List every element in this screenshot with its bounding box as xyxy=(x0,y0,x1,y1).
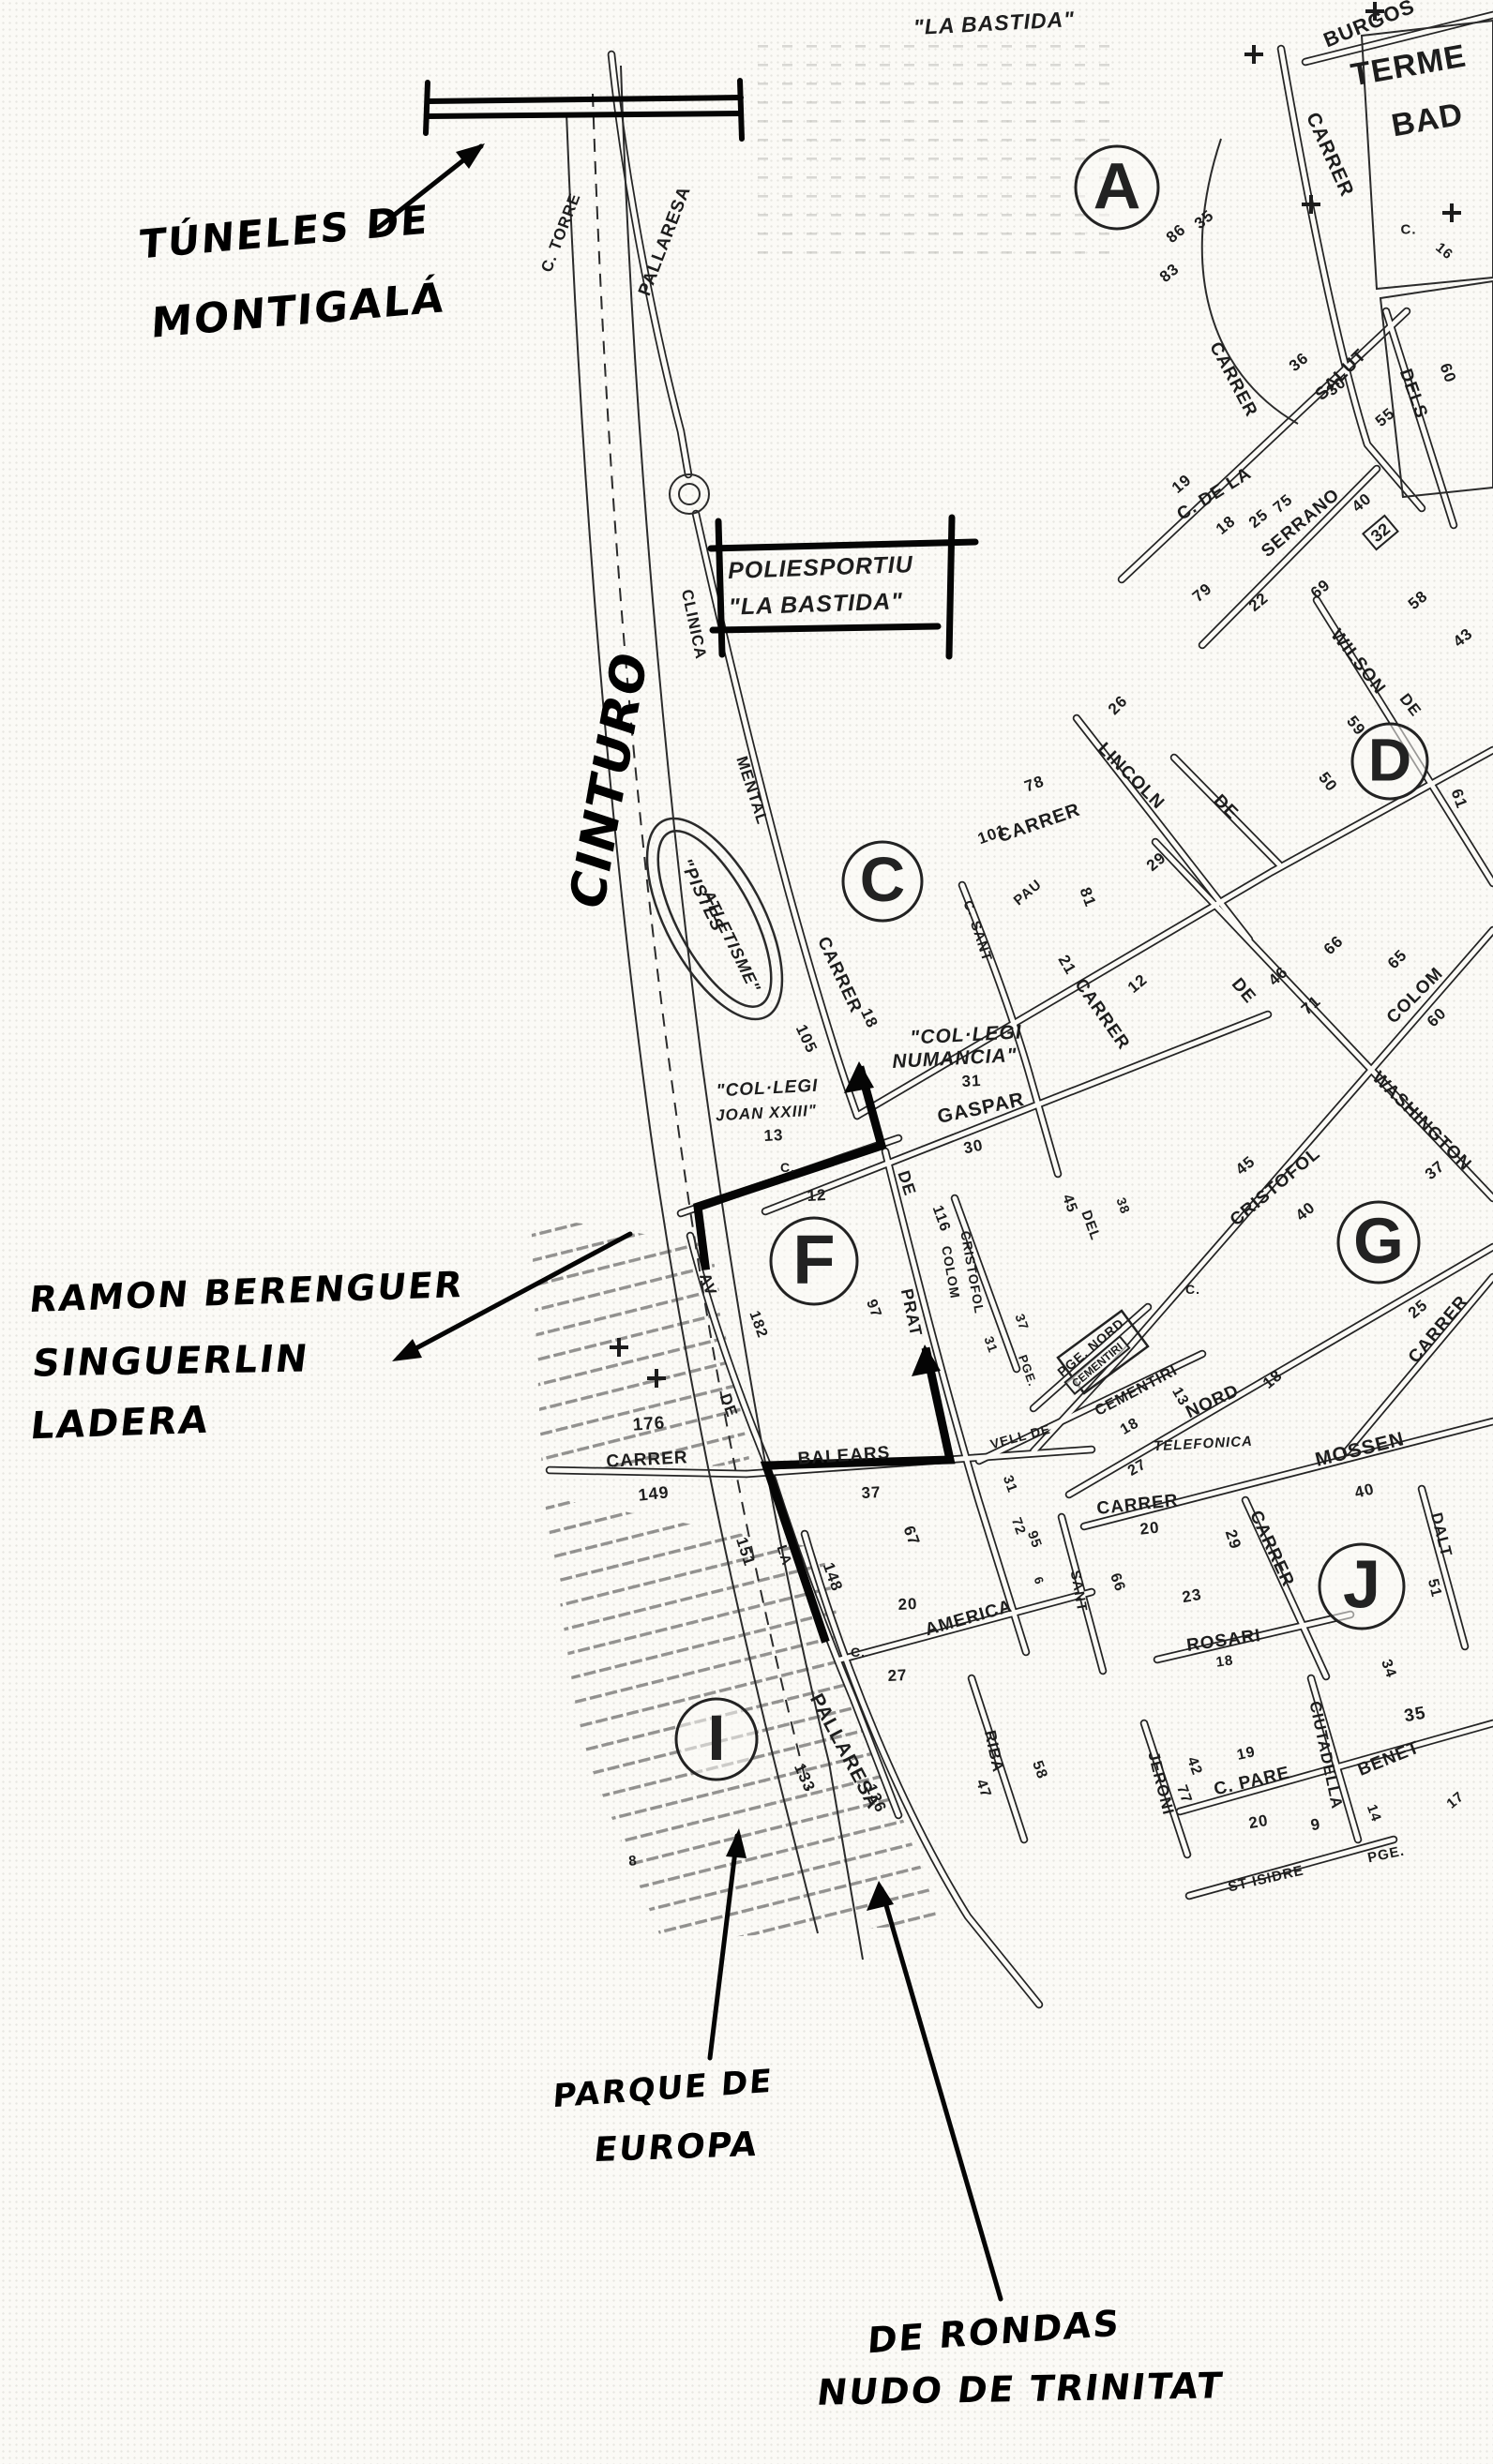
map-label-19: 19 xyxy=(1236,1745,1258,1764)
map-label-60: 60 xyxy=(1425,1005,1450,1030)
map-label-18: 18 xyxy=(1214,513,1239,537)
map-label-del: DEL xyxy=(1078,1209,1102,1242)
map-label-carrer: CARRER xyxy=(1071,976,1133,1053)
map-label-lincoln: LINCOLN xyxy=(1094,740,1168,813)
map-label-61: 61 xyxy=(1448,787,1470,810)
map-label-6: 6 xyxy=(1032,1575,1046,1586)
map-label-151: 151 xyxy=(733,1535,758,1568)
handwritten-ramon-berenguer: RAMON BERENGUER xyxy=(28,1267,466,1317)
map-label-poliesportiu: POLIESPORTIU xyxy=(728,553,913,583)
scanned-map-page: TÚNELES DEMONTIGALÁCINTURORAMON BERENGUE… xyxy=(0,0,1493,2464)
map-label-rosari: ROSARI xyxy=(1185,1627,1262,1655)
map-label-jeroni: JERONI xyxy=(1145,1750,1176,1816)
map-label-mental: MENTAL xyxy=(733,754,771,826)
map-label-prat: PRAT xyxy=(898,1287,925,1338)
map-label-colom: COLOM xyxy=(940,1245,962,1300)
map-label-182: 182 xyxy=(746,1309,769,1340)
map-label-29: 29 xyxy=(1223,1527,1244,1551)
map-label-dels: DELS xyxy=(1396,367,1431,421)
map-label-de: DE xyxy=(717,1391,741,1420)
map-label-75: 75 xyxy=(1271,491,1296,516)
map-label-c: C. xyxy=(1401,223,1417,237)
map-label-atletisme: ATLETISME" xyxy=(700,887,763,995)
map-label-col-legi: "COL·LEGI xyxy=(910,1022,1022,1047)
map-label-37: 37 xyxy=(1423,1158,1448,1182)
map-label-36: 36 xyxy=(1287,350,1312,374)
map-label-27: 27 xyxy=(887,1667,908,1684)
map-label-col-legi: "COL·LEGI xyxy=(716,1077,819,1101)
map-label-carrer: CARRER xyxy=(995,801,1082,847)
map-label-58: 58 xyxy=(1406,588,1431,612)
map-label-77: 77 xyxy=(1173,1783,1194,1806)
map-label-carrer: CARRER xyxy=(814,934,865,1015)
map-label-c-torre: C. TORRE xyxy=(538,190,583,274)
map-label-67: 67 xyxy=(900,1524,922,1547)
map-label-c: C. xyxy=(780,1161,795,1174)
map-label-20: 20 xyxy=(1247,1812,1270,1831)
map-label-149: 149 xyxy=(638,1483,671,1503)
map-label-8: 8 xyxy=(628,1854,639,1869)
map-label-69: 69 xyxy=(1308,577,1334,601)
map-label-43: 43 xyxy=(1451,625,1476,650)
map-label-176: 176 xyxy=(632,1414,666,1434)
map-labels-layer: TÚNELES DEMONTIGALÁCINTURORAMON BERENGUE… xyxy=(0,0,1493,2464)
map-label-59: 59 xyxy=(1344,714,1368,739)
map-label-16: 16 xyxy=(1433,240,1455,263)
map-label-30: 30 xyxy=(962,1137,985,1157)
map-label-mossen: MOSSEN xyxy=(1313,1429,1406,1470)
map-label-58: 58 xyxy=(1029,1759,1049,1781)
map-label-116: 116 xyxy=(929,1204,953,1235)
map-label-de: DE xyxy=(895,1168,918,1197)
map-label-dalt: DALT xyxy=(1428,1511,1455,1559)
map-label-97: 97 xyxy=(863,1298,883,1320)
map-label-14: 14 xyxy=(1365,1803,1383,1825)
handwritten-parque-de: PARQUE DE xyxy=(551,2066,774,2113)
map-label-numancia: NUMANCIA" xyxy=(892,1045,1018,1072)
map-label-21: 21 xyxy=(1055,953,1078,978)
map-label-carrer: CARRER xyxy=(1303,110,1357,200)
map-label-20: 20 xyxy=(897,1596,918,1613)
map-label-sant: SANT xyxy=(1068,1570,1090,1614)
map-label-c: C. xyxy=(1185,1283,1200,1296)
handwritten-nudo-de-trinitat: NUDO DE TRINITAT xyxy=(815,2367,1226,2411)
map-label-13: 13 xyxy=(763,1127,784,1144)
map-label-9: 9 xyxy=(1309,1816,1321,1834)
map-label-18: 18 xyxy=(1260,1367,1286,1391)
map-label-la: LA xyxy=(774,1543,793,1568)
map-label-31: 31 xyxy=(1001,1474,1019,1495)
map-label-20: 20 xyxy=(1139,1519,1161,1537)
handwritten-ladera: LADERA xyxy=(29,1402,212,1446)
map-label-31: 31 xyxy=(961,1073,982,1089)
map-label-17: 17 xyxy=(1444,1789,1467,1811)
map-label-25: 25 xyxy=(1406,1297,1431,1321)
handwritten-t-neles-de: TÚNELES DE xyxy=(138,200,430,264)
map-label-83: 83 xyxy=(1157,261,1183,285)
map-label-35: 35 xyxy=(1192,207,1217,232)
district-letter-a: A xyxy=(1093,148,1141,223)
handwritten-de-rondas: DE RONDAS xyxy=(867,2305,1122,2358)
district-letter-d: D xyxy=(1368,726,1411,795)
map-label-12: 12 xyxy=(807,1187,827,1204)
map-label-de: DE xyxy=(1210,791,1242,823)
map-label-34: 34 xyxy=(1378,1658,1398,1680)
map-label-pge: PGE. xyxy=(1366,1844,1406,1866)
map-label-55: 55 xyxy=(1373,405,1398,429)
map-label-26: 26 xyxy=(1106,693,1131,718)
map-label-pge: PGE. xyxy=(1017,1353,1039,1388)
map-label-cementiri: CEMENTIRI xyxy=(1093,1363,1180,1420)
map-label-riba: RIBA xyxy=(982,1729,1006,1774)
map-label-37: 37 xyxy=(1013,1312,1031,1331)
map-label-95: 95 xyxy=(1025,1529,1044,1551)
map-label-45: 45 xyxy=(1233,1153,1259,1178)
map-label-66: 66 xyxy=(1107,1571,1127,1594)
map-label-42: 42 xyxy=(1184,1755,1204,1778)
map-label-78: 78 xyxy=(1022,773,1046,794)
map-label-bad: BAD xyxy=(1389,98,1465,143)
map-label-32: 32 xyxy=(1362,515,1399,551)
map-label-st-isidre: ST ISIDRE xyxy=(1227,1863,1305,1894)
map-label-18: 18 xyxy=(1215,1653,1235,1669)
map-label-wilson: WILSON xyxy=(1327,626,1388,698)
map-label-la-bastida: "LA BASTIDA" xyxy=(729,590,904,619)
map-label-gaspar: GASPAR xyxy=(936,1089,1027,1127)
map-label-12: 12 xyxy=(1125,971,1151,996)
map-label-51: 51 xyxy=(1425,1577,1443,1599)
map-label-america: AMERICA xyxy=(923,1598,1014,1640)
map-label-de: DE xyxy=(1396,691,1424,720)
map-label-22: 22 xyxy=(1246,590,1272,614)
map-label-terme: TERME xyxy=(1349,39,1469,91)
map-label-vell-de: VELL DE xyxy=(988,1422,1051,1451)
district-letter-f: F xyxy=(792,1220,835,1300)
map-label-telefonica: TELEFONICA xyxy=(1154,1435,1253,1454)
map-label-35: 35 xyxy=(1403,1705,1427,1726)
map-label-cristofol: CRISTOFOL xyxy=(958,1230,986,1315)
map-label-40: 40 xyxy=(1350,490,1375,515)
map-label-66: 66 xyxy=(1321,933,1347,958)
map-label-23: 23 xyxy=(1181,1586,1203,1605)
map-label-ciutadella: CIUTADELLA xyxy=(1306,1700,1345,1810)
map-label-clinica: CLINICA xyxy=(679,588,709,661)
map-label-86: 86 xyxy=(1164,221,1189,246)
map-label-carrer: CARRER xyxy=(606,1449,688,1471)
map-label-carrer: CARRER xyxy=(1206,339,1260,420)
map-label-av: AV xyxy=(697,1271,719,1299)
map-label-c: C. xyxy=(961,898,980,918)
handwritten-singuerlin: SINGUERLIN xyxy=(30,1340,310,1382)
map-label-71: 71 xyxy=(1299,993,1324,1018)
map-label-27: 27 xyxy=(1125,1457,1149,1480)
map-label-benet: BENET xyxy=(1355,1738,1422,1780)
map-label-c: C. xyxy=(851,1645,866,1659)
map-label-carrer: CARRER xyxy=(1246,1508,1297,1589)
map-label-balears: BALEARS xyxy=(797,1444,891,1468)
map-label-sant: SANT xyxy=(968,919,994,963)
map-label-carrer: CARRER xyxy=(1096,1492,1180,1518)
map-label-46: 46 xyxy=(1266,964,1291,989)
district-letter-g: G xyxy=(1353,1204,1404,1278)
map-label-joan-xxiii: JOAN XXIII" xyxy=(716,1103,818,1124)
district-letter-c: C xyxy=(860,844,905,916)
handwritten-montigal: MONTIGALÁ xyxy=(150,278,446,345)
district-letter-i: I xyxy=(707,1701,725,1775)
map-label-18: 18 xyxy=(1118,1416,1141,1438)
handwritten-cinturo: CINTURO xyxy=(564,644,656,915)
map-label-de: DE xyxy=(1229,975,1259,1007)
map-label-salut: SALUT xyxy=(1312,346,1370,404)
map-label-29: 29 xyxy=(1144,849,1169,874)
handwritten-europa: EUROPA xyxy=(593,2128,761,2168)
map-label-c-pare: C. PARE xyxy=(1213,1764,1292,1798)
map-label-45: 45 xyxy=(1059,1193,1079,1215)
map-label-47: 47 xyxy=(973,1778,993,1800)
map-label-burgos: BURGOS xyxy=(1320,0,1417,51)
map-label-pau: PAU xyxy=(1011,877,1044,908)
map-label-40: 40 xyxy=(1293,1199,1319,1224)
map-label-pallaresa: PALLARESA xyxy=(636,184,694,298)
map-label-nord: NORD xyxy=(1184,1382,1242,1422)
district-letter-j: J xyxy=(1343,1546,1380,1623)
map-label-81: 81 xyxy=(1077,885,1098,909)
map-label-31: 31 xyxy=(982,1334,1000,1354)
map-label-40: 40 xyxy=(1353,1480,1376,1501)
map-label-la-bastida: "LA BASTIDA" xyxy=(912,8,1075,38)
map-label-148: 148 xyxy=(821,1560,846,1593)
map-label-washington: WASHINGTON xyxy=(1369,1069,1475,1175)
map-label-38: 38 xyxy=(1114,1195,1132,1215)
map-label-serrano: SERRANO xyxy=(1259,486,1343,561)
map-label-50: 50 xyxy=(1316,770,1340,795)
map-label-65: 65 xyxy=(1385,947,1410,972)
map-label-60: 60 xyxy=(1437,361,1458,384)
map-label-19: 19 xyxy=(1169,472,1195,496)
map-label-79: 79 xyxy=(1190,580,1215,605)
map-label-25: 25 xyxy=(1246,506,1272,531)
map-label-37: 37 xyxy=(861,1484,882,1501)
map-label-133: 133 xyxy=(792,1761,818,1795)
map-label-105: 105 xyxy=(793,1022,821,1056)
